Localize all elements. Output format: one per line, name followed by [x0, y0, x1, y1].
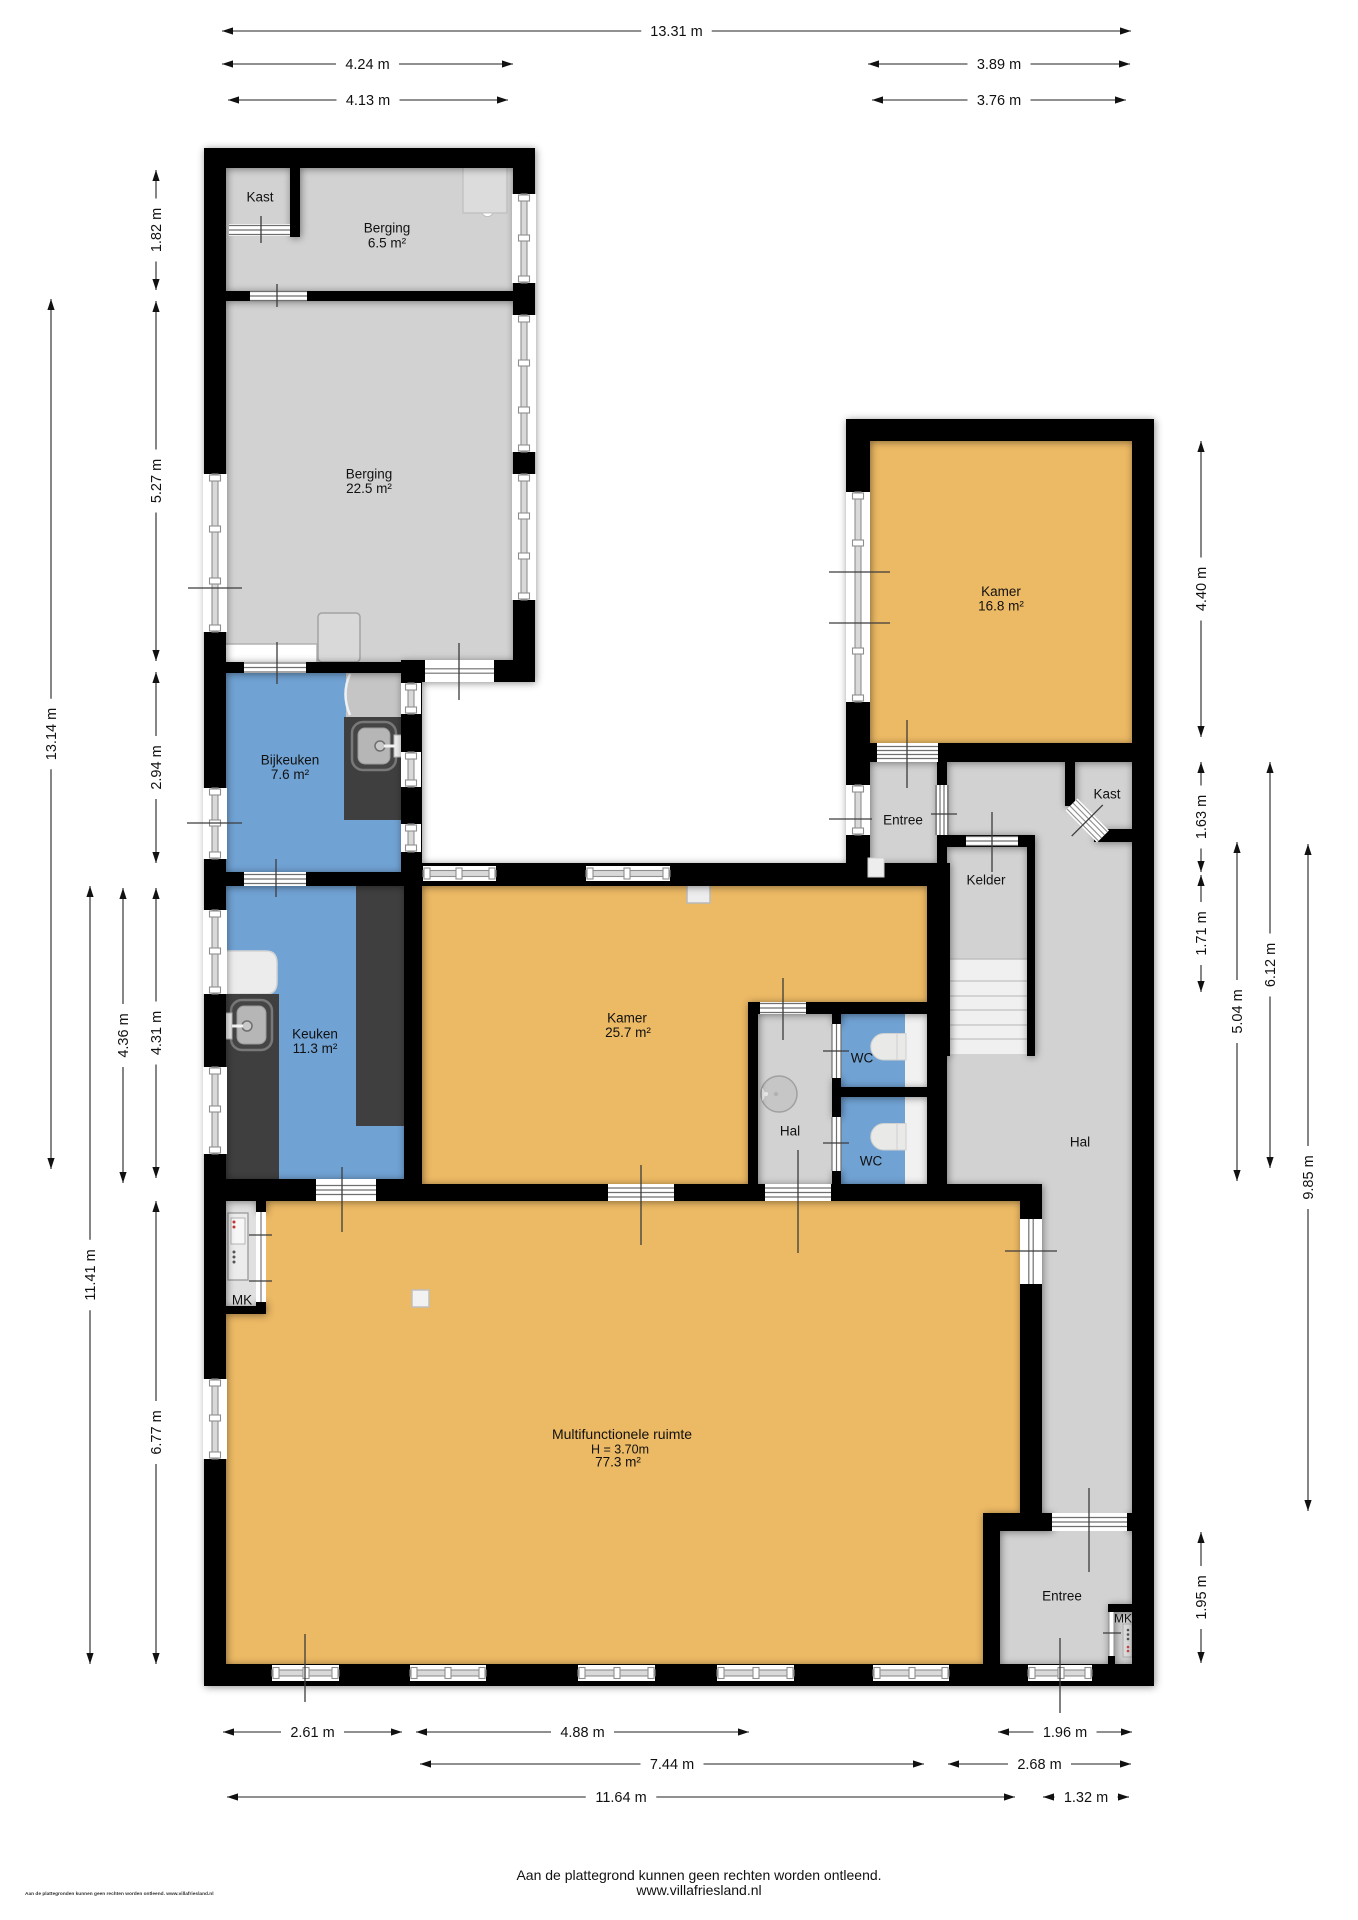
svg-text:2.61 m: 2.61 m — [290, 1725, 334, 1741]
svg-text:Berging: Berging — [346, 467, 393, 482]
svg-text:3.76 m: 3.76 m — [977, 93, 1021, 109]
svg-text:4.24 m: 4.24 m — [345, 57, 389, 73]
svg-text:7.6 m²: 7.6 m² — [271, 767, 310, 782]
svg-text:WC: WC — [851, 1051, 874, 1066]
svg-text:Kamer: Kamer — [981, 584, 1021, 599]
svg-text:2.68 m: 2.68 m — [1017, 1757, 1061, 1773]
svg-text:7.44 m: 7.44 m — [650, 1757, 694, 1773]
svg-text:MK: MK — [1114, 1612, 1132, 1626]
svg-text:6.77 m: 6.77 m — [149, 1410, 165, 1454]
svg-text:Kelder: Kelder — [966, 873, 1006, 888]
svg-text:1.95 m: 1.95 m — [1194, 1575, 1210, 1619]
svg-text:77.3 m²: 77.3 m² — [595, 1455, 641, 1470]
svg-text:22.5 m²: 22.5 m² — [346, 481, 392, 496]
svg-text:25.7 m²: 25.7 m² — [605, 1025, 651, 1040]
svg-text:1.63 m: 1.63 m — [1194, 795, 1210, 839]
svg-text:Aan de plattegronden kunnen ge: Aan de plattegronden kunnen geen rechten… — [25, 1891, 214, 1897]
svg-text:5.04 m: 5.04 m — [1230, 989, 1246, 1033]
svg-text:Kamer: Kamer — [607, 1011, 647, 1026]
svg-text:13.31 m: 13.31 m — [650, 24, 702, 40]
svg-text:11.41 m: 11.41 m — [83, 1249, 99, 1300]
svg-text:www.villafriesland.nl: www.villafriesland.nl — [635, 1882, 761, 1898]
svg-text:4.88 m: 4.88 m — [560, 1725, 604, 1741]
svg-text:2.94 m: 2.94 m — [149, 745, 165, 789]
svg-text:6.5 m²: 6.5 m² — [368, 236, 407, 251]
svg-text:1.71 m: 1.71 m — [1194, 911, 1210, 955]
svg-text:4.31 m: 4.31 m — [149, 1011, 165, 1055]
svg-text:Kast: Kast — [1093, 787, 1120, 802]
svg-text:Bijkeuken: Bijkeuken — [261, 753, 320, 768]
svg-text:13.14 m: 13.14 m — [44, 708, 60, 760]
svg-text:1.96 m: 1.96 m — [1043, 1725, 1087, 1741]
svg-text:Entree: Entree — [1042, 1589, 1082, 1604]
svg-text:4.36 m: 4.36 m — [116, 1013, 132, 1057]
svg-text:Entree: Entree — [883, 813, 923, 828]
svg-text:Aan de plattegrond kunnen geen: Aan de plattegrond kunnen geen rechten w… — [516, 1867, 881, 1883]
svg-text:Keuken: Keuken — [292, 1027, 338, 1042]
svg-text:3.89 m: 3.89 m — [977, 57, 1021, 73]
svg-text:Berging: Berging — [364, 221, 411, 236]
svg-text:4.40 m: 4.40 m — [1194, 567, 1210, 611]
svg-text:Multifunctionele ruimte: Multifunctionele ruimte — [552, 1426, 692, 1442]
svg-text:11.64 m: 11.64 m — [595, 1790, 646, 1806]
svg-text:WC: WC — [860, 1154, 883, 1169]
svg-text:5.27 m: 5.27 m — [149, 459, 165, 503]
svg-text:6.12 m: 6.12 m — [1263, 943, 1279, 987]
svg-text:Hal: Hal — [780, 1124, 800, 1139]
svg-text:MK: MK — [232, 1293, 252, 1308]
svg-text:9.85 m: 9.85 m — [1301, 1155, 1317, 1199]
svg-text:Kast: Kast — [246, 190, 273, 205]
svg-text:4.13 m: 4.13 m — [346, 93, 390, 109]
svg-text:1.32 m: 1.32 m — [1064, 1790, 1108, 1806]
svg-text:Hal: Hal — [1070, 1135, 1090, 1150]
svg-text:1.82 m: 1.82 m — [149, 208, 165, 252]
svg-text:16.8 m²: 16.8 m² — [978, 599, 1024, 614]
svg-text:11.3 m²: 11.3 m² — [293, 1041, 338, 1056]
